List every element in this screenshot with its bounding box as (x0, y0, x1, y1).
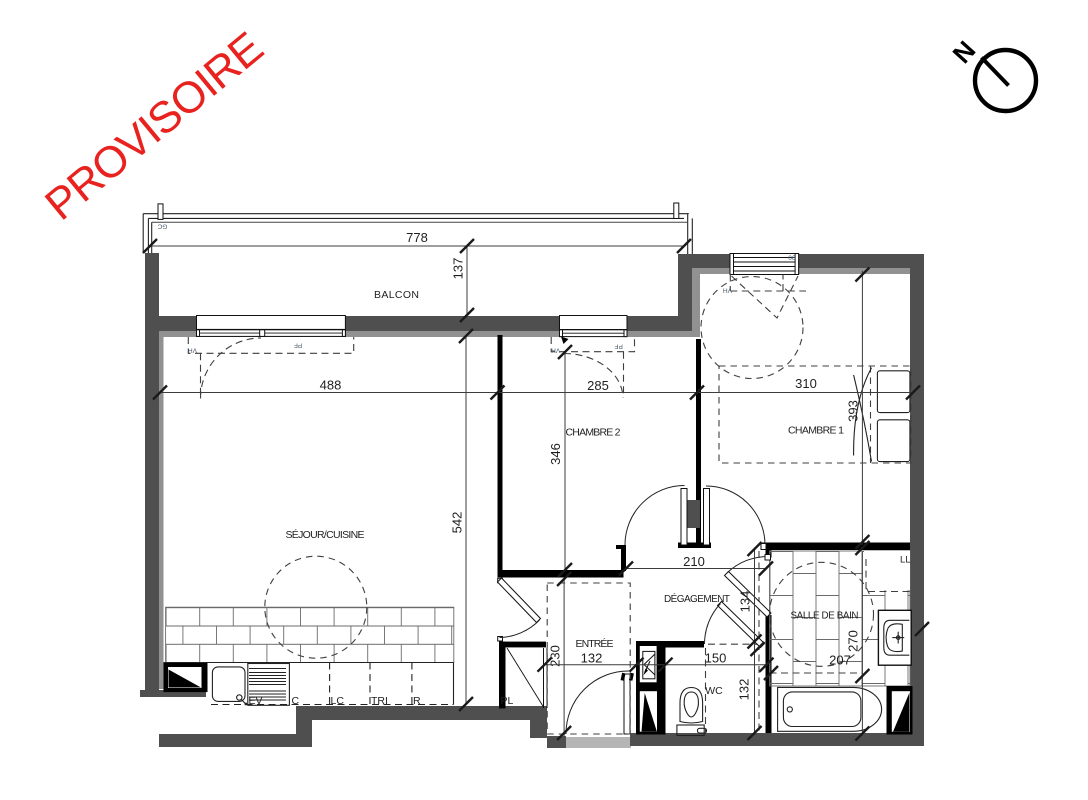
svg-text:TRI: TRI (371, 695, 388, 707)
svg-text:542: 542 (450, 512, 465, 534)
svg-text:R: R (413, 695, 421, 707)
svg-text:C: C (292, 695, 300, 707)
svg-text:393: 393 (846, 400, 861, 422)
svg-text:SÉJOUR/CUISINE: SÉJOUR/CUISINE (286, 528, 365, 541)
svg-text:VH: VH (551, 347, 560, 354)
svg-text:EV: EV (249, 695, 263, 707)
svg-text:WC: WC (705, 685, 723, 697)
svg-text:488: 488 (320, 378, 342, 393)
svg-text:ENTRÉE: ENTRÉE (576, 637, 614, 650)
svg-text:LC: LC (331, 695, 345, 707)
svg-text:SALLE DE BAIN: SALLE DE BAIN (791, 611, 859, 622)
svg-text:VH: VH (723, 287, 732, 294)
svg-text:346: 346 (548, 443, 563, 465)
svg-text:PF: PF (294, 342, 302, 349)
svg-text:CHAMBRE 2: CHAMBRE 2 (566, 427, 621, 439)
svg-text:DÉGAGEMENT: DÉGAGEMENT (664, 592, 730, 605)
svg-text:207: 207 (829, 653, 851, 668)
svg-text:GC: GC (157, 223, 167, 230)
svg-text:134: 134 (738, 591, 753, 613)
svg-text:CHAMBRE 1: CHAMBRE 1 (788, 425, 844, 437)
svg-text:285: 285 (587, 378, 609, 393)
svg-text:132: 132 (581, 651, 603, 666)
svg-text:310: 310 (795, 376, 817, 391)
svg-text:LL: LL (900, 555, 911, 566)
svg-text:VH: VH (188, 347, 197, 354)
svg-text:132: 132 (737, 679, 752, 701)
svg-text:270: 270 (846, 630, 861, 652)
svg-text:137: 137 (451, 258, 466, 280)
svg-text:PF: PF (615, 343, 623, 350)
svg-text:230: 230 (548, 645, 563, 667)
svg-text:210: 210 (683, 554, 705, 569)
svg-text:PL: PL (501, 695, 514, 707)
svg-text:150: 150 (705, 651, 727, 666)
svg-text:778: 778 (406, 230, 428, 245)
svg-text:BALCON: BALCON (374, 289, 419, 301)
svg-text:90: 90 (788, 254, 796, 261)
